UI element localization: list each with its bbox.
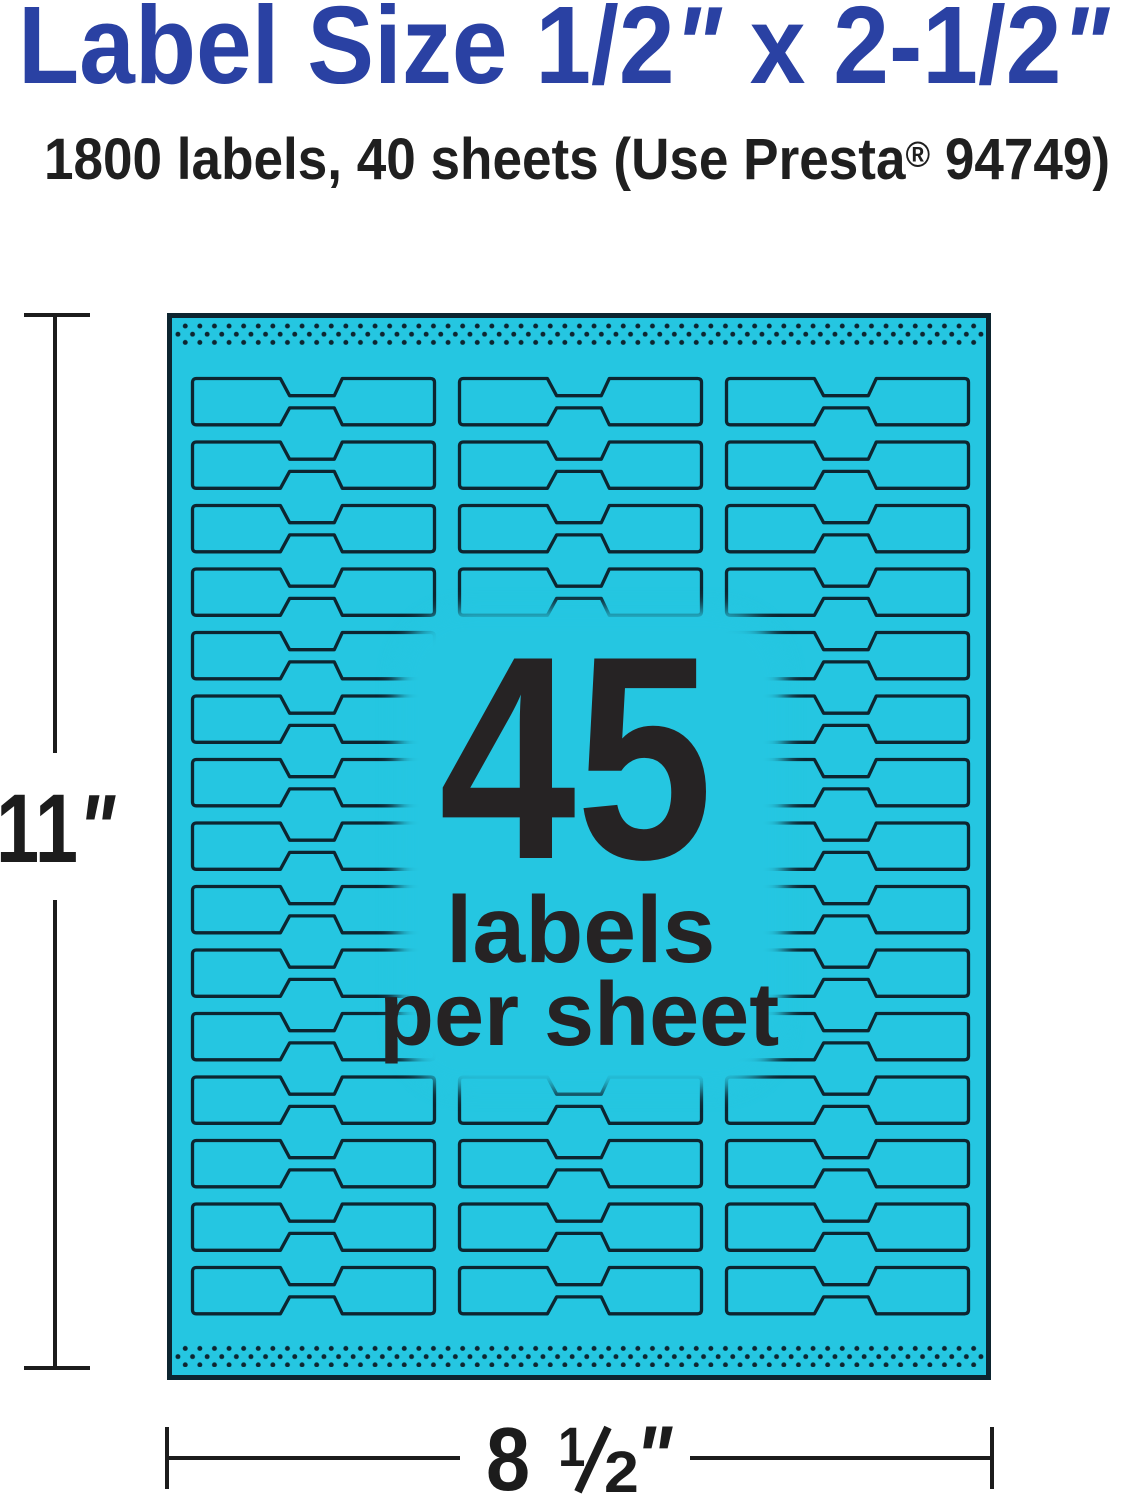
svg-text:45: 45 (439, 596, 713, 921)
svg-text:per sheet: per sheet (379, 965, 779, 1065)
